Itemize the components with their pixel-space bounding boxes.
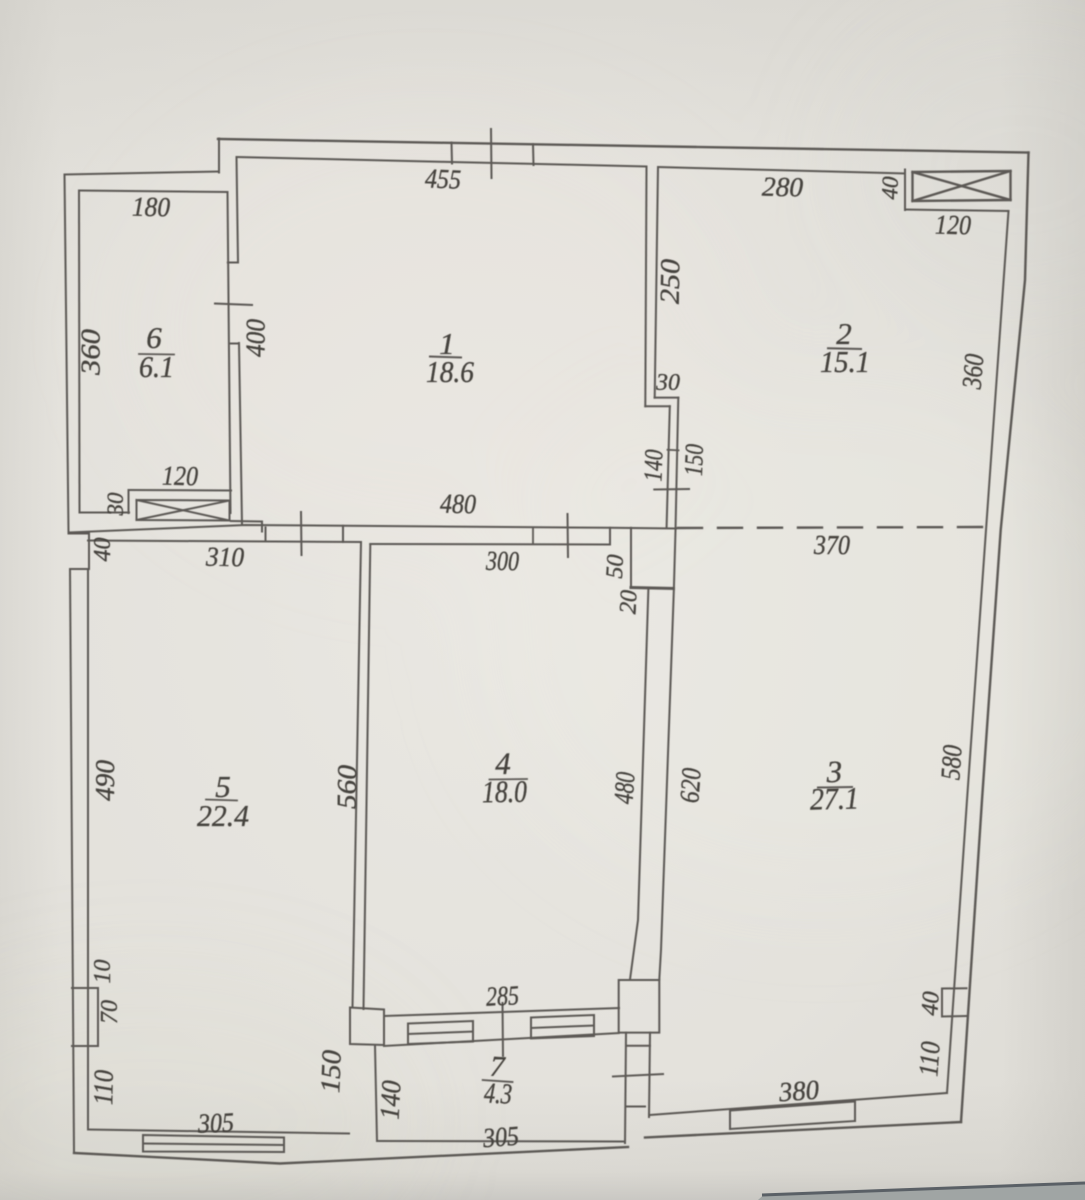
svg-text:40: 40: [877, 176, 903, 200]
svg-text:18.6: 18.6: [426, 354, 474, 389]
svg-text:400: 400: [240, 319, 271, 357]
svg-text:280: 280: [762, 170, 804, 202]
svg-text:140: 140: [374, 1079, 407, 1120]
svg-text:380: 380: [777, 1074, 820, 1108]
svg-text:300: 300: [485, 545, 520, 577]
svg-text:360: 360: [75, 329, 106, 376]
svg-text:50: 50: [602, 554, 629, 579]
svg-text:360: 360: [955, 352, 989, 391]
svg-text:30: 30: [103, 492, 128, 517]
svg-text:110: 110: [912, 1040, 945, 1077]
svg-text:305: 305: [197, 1106, 235, 1138]
svg-text:480: 480: [440, 488, 477, 520]
svg-text:120: 120: [162, 460, 199, 492]
svg-text:4.3: 4.3: [483, 1077, 513, 1110]
svg-text:180: 180: [132, 191, 171, 223]
svg-text:15.1: 15.1: [820, 344, 870, 379]
svg-text:490: 490: [89, 760, 120, 801]
svg-text:150: 150: [314, 1049, 346, 1093]
svg-text:580: 580: [934, 744, 967, 781]
svg-text:30: 30: [655, 370, 680, 396]
svg-text:455: 455: [425, 162, 462, 194]
svg-text:18.0: 18.0: [482, 774, 528, 810]
svg-text:620: 620: [673, 767, 706, 804]
svg-text:150: 150: [679, 443, 709, 476]
svg-text:40: 40: [917, 991, 945, 1017]
svg-text:20: 20: [615, 589, 642, 614]
svg-text:250: 250: [654, 258, 686, 304]
svg-text:22.4: 22.4: [197, 798, 249, 833]
svg-text:560: 560: [331, 764, 363, 809]
svg-text:285: 285: [485, 979, 519, 1011]
svg-text:370: 370: [813, 529, 850, 560]
svg-text:310: 310: [205, 541, 245, 573]
svg-text:305: 305: [481, 1120, 520, 1153]
svg-text:140: 140: [638, 449, 668, 482]
svg-text:120: 120: [935, 209, 972, 241]
svg-text:27.1: 27.1: [809, 780, 859, 816]
svg-text:6.1: 6.1: [139, 349, 174, 384]
svg-text:480: 480: [607, 771, 640, 805]
svg-text:110: 110: [87, 1069, 119, 1105]
svg-text:70: 70: [97, 1000, 123, 1024]
svg-text:10: 10: [90, 960, 116, 984]
svg-text:40: 40: [90, 538, 116, 562]
